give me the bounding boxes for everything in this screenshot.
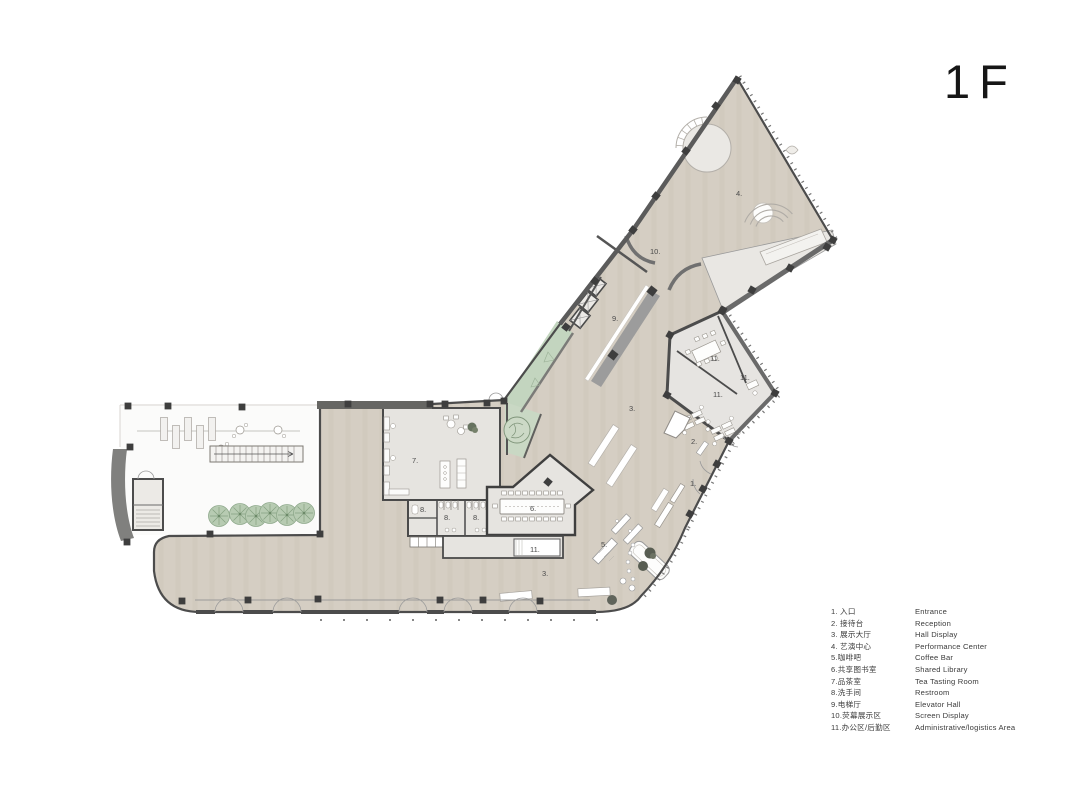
legend-row: 5.咖啡吧Coffee Bar xyxy=(831,652,1015,664)
legend-row: 9.电梯厅Elevator Hall xyxy=(831,699,1015,711)
legend-row: 3. 展示大厅Hall Display xyxy=(831,629,1015,641)
legend-row: 1. 入口Entrance xyxy=(831,606,1015,618)
label-hall-display-lower: 3. xyxy=(542,569,548,578)
legend: 1. 入口Entrance 2. 接待台Reception 3. 展示大厅Hal… xyxy=(831,606,1015,734)
legend-en: Screen Display xyxy=(915,710,969,722)
legend-row: 11.办公区/后勤区Administrative/logistics Area xyxy=(831,722,1015,734)
legend-en: Reception xyxy=(915,618,951,630)
legend-row: 8.洗手间Restroom xyxy=(831,687,1015,699)
legend-en: Elevator Hall xyxy=(915,699,961,711)
window-plant xyxy=(786,146,798,154)
label-entrance: 1. xyxy=(690,479,696,488)
label-coffee-bar: 5. xyxy=(601,540,607,549)
legend-cn: 2. 接待台 xyxy=(831,618,915,630)
service-corridor xyxy=(443,536,563,558)
legend-cn: 8.洗手间 xyxy=(831,687,915,699)
tea-room-block xyxy=(383,393,503,500)
label-office-3: 11. xyxy=(713,390,723,399)
legend-en: Entrance xyxy=(915,606,947,618)
terrace-stair xyxy=(210,446,303,462)
legend-cn: 10.荧幕展示区 xyxy=(831,710,915,722)
legend-en: Hall Display xyxy=(915,629,958,641)
legend-cn: 3. 展示大厅 xyxy=(831,629,915,641)
label-tea-room: 7. xyxy=(412,456,418,465)
legend-en: Shared Library xyxy=(915,664,968,676)
legend-row: 10.荧幕展示区Screen Display xyxy=(831,710,1015,722)
planter-circle xyxy=(504,417,530,443)
label-restroom-2: 8. xyxy=(444,513,450,522)
legend-row: 2. 接待台Reception xyxy=(831,618,1015,630)
label-office-1: 11. xyxy=(710,354,720,363)
legend-cn: 1. 入口 xyxy=(831,606,915,618)
floor-plan-canvas: 4. 10. 9. 3. 3. 11. 11. 11. 11. 2. 1. 7.… xyxy=(0,0,1080,787)
legend-cn: 11.办公区/后勤区 xyxy=(831,722,915,734)
floor-planter xyxy=(607,595,617,605)
label-screen-display: 10. xyxy=(650,247,660,256)
label-library: 6. xyxy=(530,504,536,513)
label-performance-center: 4. xyxy=(736,189,742,198)
label-hall-display-upper: 3. xyxy=(629,404,635,413)
locker-row xyxy=(410,537,444,547)
legend-row: 7.品茶室Tea Tasting Room xyxy=(831,676,1015,688)
floor-title: 1F xyxy=(944,54,1017,109)
legend-cn: 9.电梯厅 xyxy=(831,699,915,711)
legend-cn: 5.咖啡吧 xyxy=(831,652,915,664)
legend-cn: 7.品茶室 xyxy=(831,676,915,688)
legend-en: Administrative/logistics Area xyxy=(915,722,1015,734)
legend-en: Performance Center xyxy=(915,641,987,653)
stair-room xyxy=(133,471,163,530)
legend-en: Tea Tasting Room xyxy=(915,676,979,688)
legend-en: Coffee Bar xyxy=(915,652,953,664)
legend-cn: 6.共享图书室 xyxy=(831,664,915,676)
label-reception: 2. xyxy=(691,437,697,446)
legend-cn: 4. 艺演中心 xyxy=(831,641,915,653)
label-elevator-hall: 9. xyxy=(612,314,618,323)
legend-row: 6.共享图书室Shared Library xyxy=(831,664,1015,676)
label-restroom-3: 8. xyxy=(473,513,479,522)
label-restroom-1: 8. xyxy=(420,505,426,514)
legend-row: 4. 艺演中心Performance Center xyxy=(831,641,1015,653)
label-office-2: 11. xyxy=(740,373,750,382)
stage-circle xyxy=(753,203,773,223)
legend-en: Restroom xyxy=(915,687,950,699)
label-office-4: 11. xyxy=(530,545,540,554)
